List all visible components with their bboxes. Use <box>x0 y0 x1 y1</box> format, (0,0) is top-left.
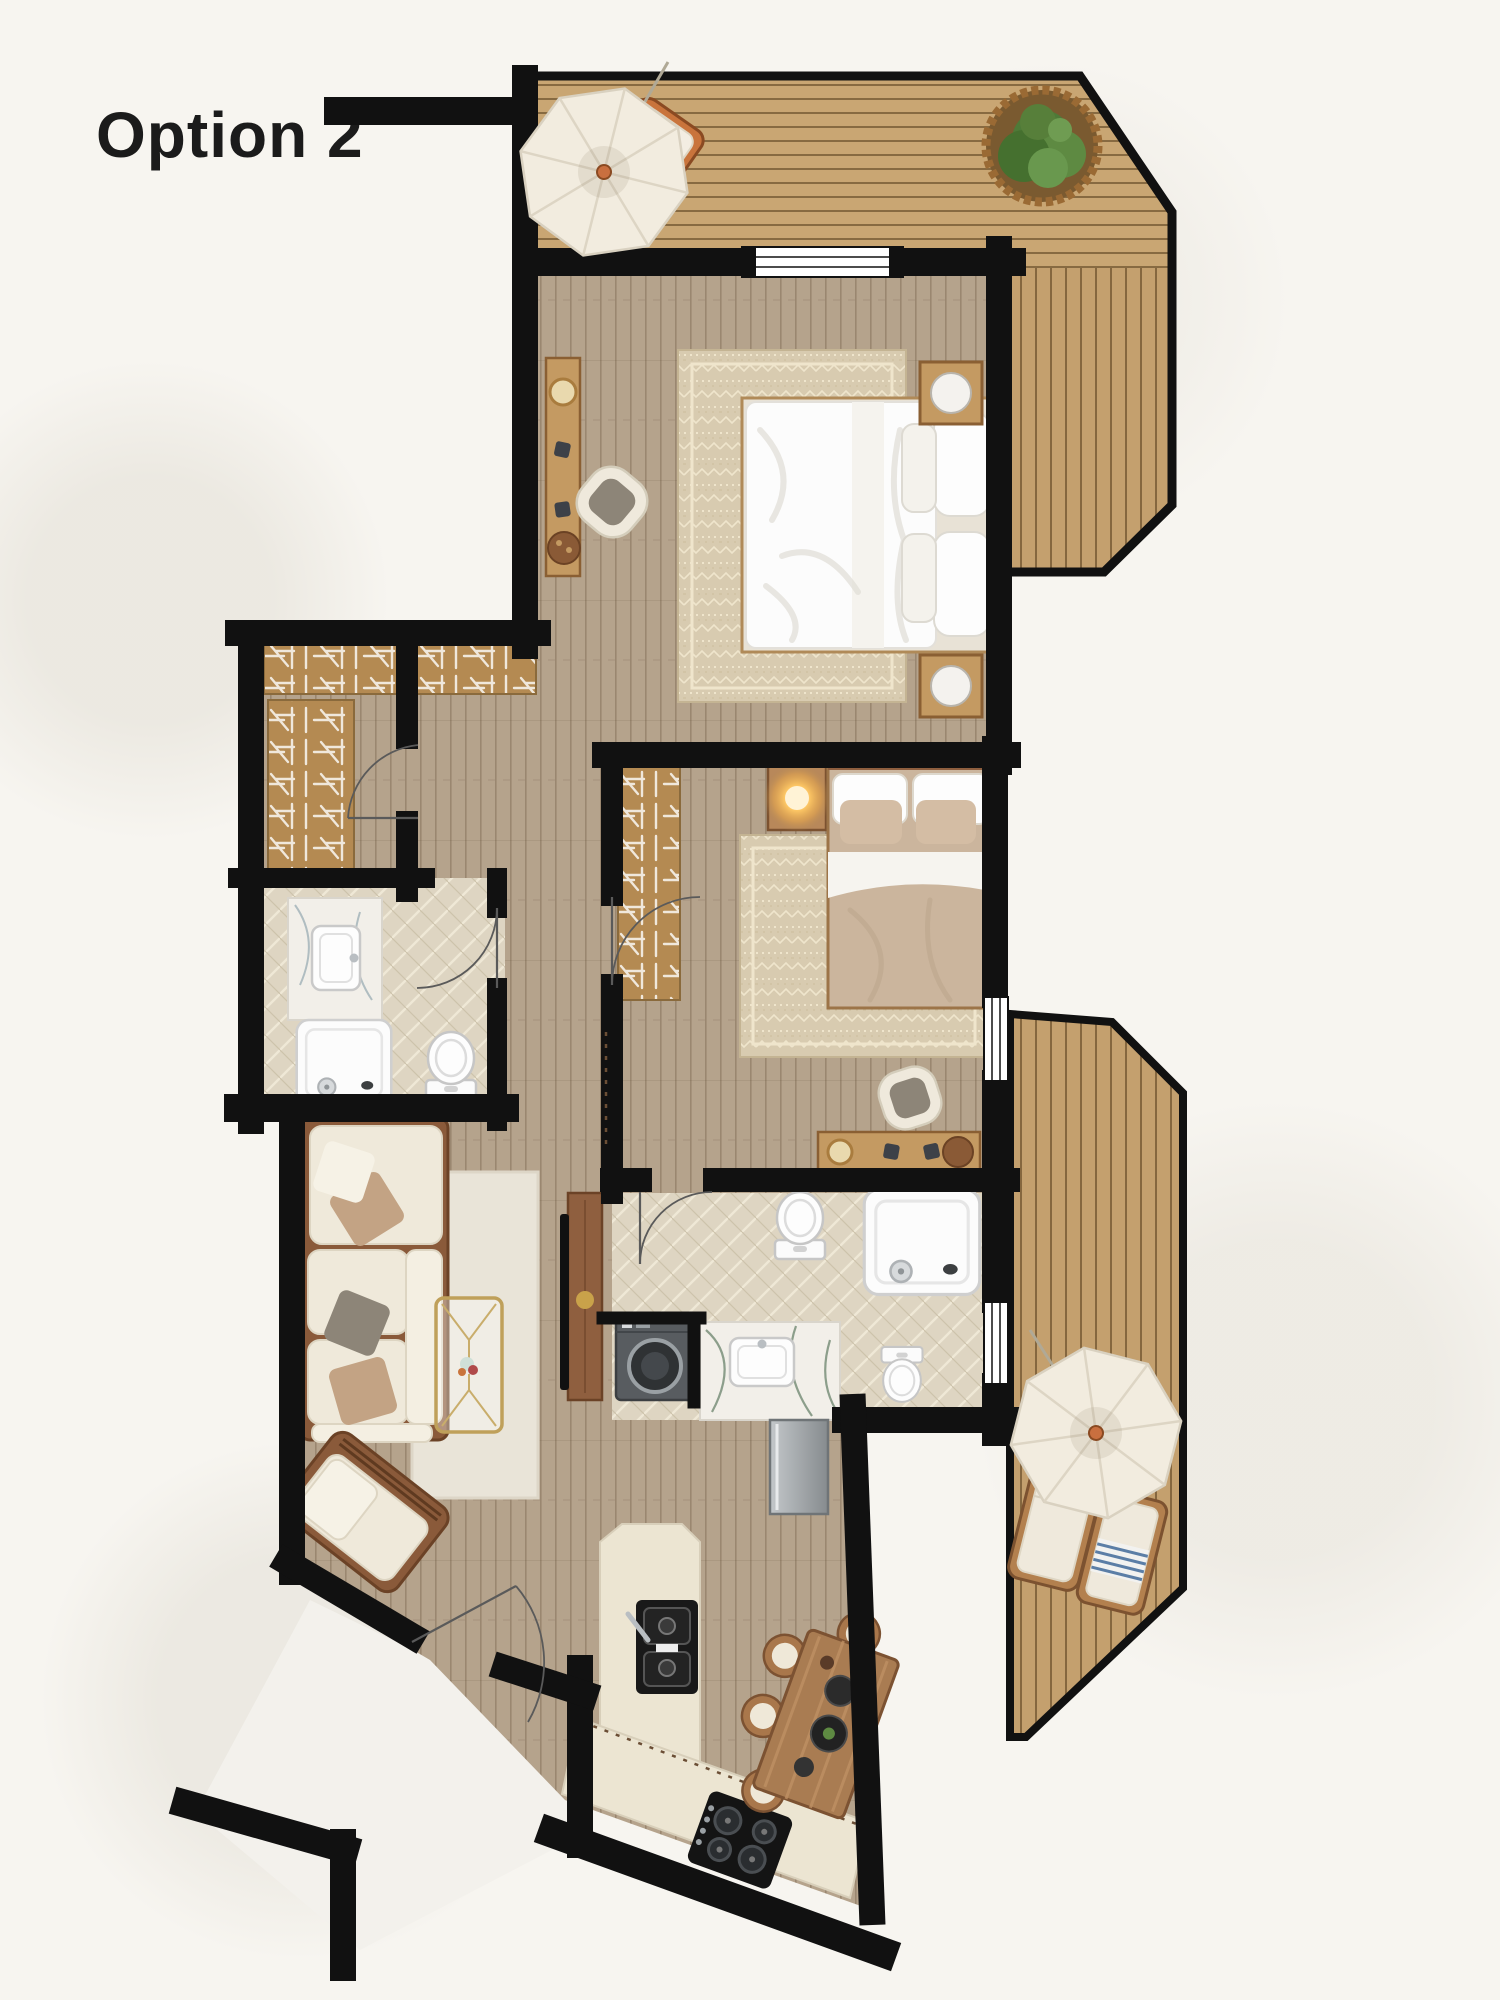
pillow <box>916 800 976 844</box>
toilet <box>426 1032 476 1099</box>
wardrobe <box>618 762 680 1000</box>
shower <box>864 1190 980 1295</box>
pillow <box>840 800 902 844</box>
double-bed <box>828 758 995 1008</box>
floor-plan <box>0 0 1500 2000</box>
pillow <box>934 532 990 636</box>
nightstand <box>920 655 982 717</box>
nightstand-lamp <box>763 764 831 832</box>
bedroom-window <box>742 247 903 277</box>
vanity-sink <box>700 1322 840 1420</box>
vanity-sink <box>288 898 382 1020</box>
sectional-sofa <box>300 1118 448 1442</box>
shower <box>297 1020 392 1106</box>
bidet <box>882 1347 923 1402</box>
fridge <box>770 1420 828 1514</box>
double-bed <box>742 398 1004 652</box>
planter <box>986 90 1098 202</box>
washing-machine <box>616 1318 694 1400</box>
pillow <box>902 424 936 512</box>
pillow <box>902 534 936 622</box>
kitchen-sink <box>628 1600 698 1694</box>
deck-window <box>984 997 1008 1081</box>
nightstand <box>920 362 982 424</box>
deck-window <box>984 1302 1008 1384</box>
tv-console <box>560 1193 602 1400</box>
wardrobe <box>268 700 354 872</box>
desk <box>818 1132 980 1172</box>
pillow <box>934 412 990 516</box>
desk <box>546 358 580 576</box>
toilet <box>775 1192 825 1259</box>
tv <box>560 1214 569 1390</box>
coffee-table <box>436 1298 502 1432</box>
